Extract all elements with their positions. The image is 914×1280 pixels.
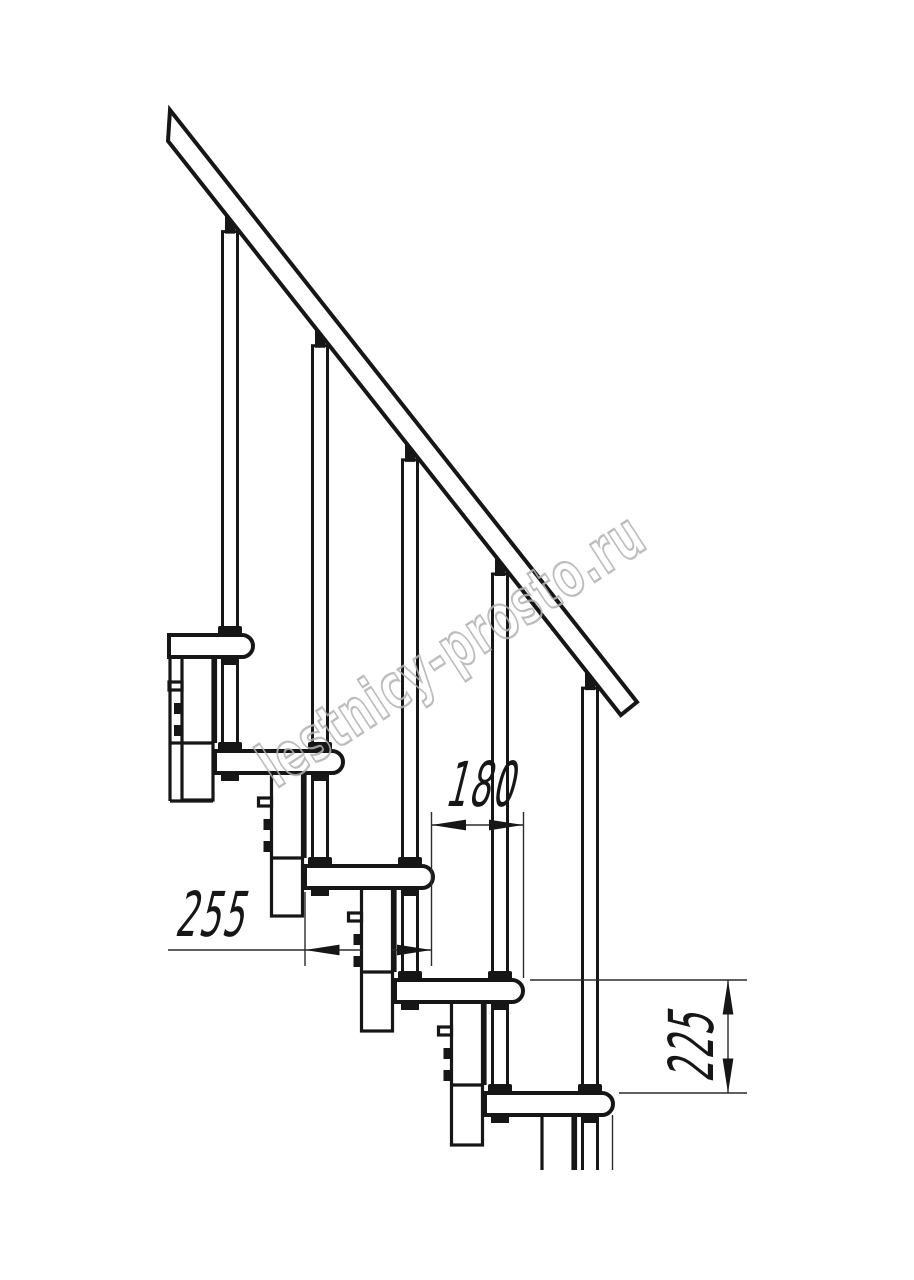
module-bolt — [444, 1070, 452, 1081]
module-bolt — [354, 934, 362, 945]
dimension-step-rise: 225 — [530, 980, 747, 1093]
module-bolt — [354, 956, 362, 967]
nut-below-tread — [401, 1002, 419, 1010]
baluster-lower-rod — [223, 657, 238, 751]
support-module-4 — [452, 1002, 483, 1145]
arrowhead-left — [305, 945, 340, 956]
support-module-1 — [182, 657, 213, 800]
nut-below-tread — [401, 888, 419, 896]
dimension-tread-overlap: 180 — [432, 749, 529, 978]
tread-1 — [169, 635, 253, 657]
tread-3 — [305, 866, 433, 888]
module-flange — [259, 798, 272, 806]
tread-5 — [485, 1093, 613, 1115]
nut-below-tread — [221, 773, 239, 781]
nut-above-tread — [488, 1084, 512, 1093]
dimension-label-180: 180 — [440, 749, 528, 822]
dimension-label-225: 225 — [656, 999, 729, 1087]
baluster-lower-rod — [313, 773, 328, 866]
dimension-label-255: 255 — [170, 879, 258, 952]
tread-4 — [395, 980, 523, 1002]
baluster-lower-rod — [403, 888, 418, 980]
module-bolt — [174, 703, 182, 714]
staircase-technical-drawing: 180 255 225 lestnicy-prosto.ru — [0, 0, 914, 1280]
baluster-lower-rod — [493, 1002, 508, 1093]
baluster-5 — [583, 688, 598, 1093]
nut-above-tread — [488, 971, 512, 980]
nut-below-tread — [491, 1002, 509, 1010]
nut-below-tread — [311, 888, 329, 896]
nut-above-tread — [218, 626, 242, 635]
module-flange — [349, 913, 362, 921]
nut-above-tread — [218, 742, 242, 751]
nut-above-tread — [398, 971, 422, 980]
baluster-1 — [223, 232, 238, 635]
nut-above-tread — [578, 1084, 602, 1093]
nut-below-tread — [581, 1115, 599, 1123]
module-bolt — [264, 841, 272, 852]
drawing-canvas: 180 255 225 lestnicy-prosto.ru — [0, 0, 914, 1280]
nut-below-tread — [221, 657, 239, 665]
module-bolt — [444, 1048, 452, 1059]
arrowhead-up — [723, 980, 734, 1015]
module-flange — [439, 1027, 452, 1035]
nut-above-tread — [308, 857, 332, 866]
module-bolt — [264, 819, 272, 830]
nut-above-tread — [398, 857, 422, 866]
support-module-3 — [362, 888, 393, 1031]
module-bolt — [174, 725, 182, 736]
nut-below-tread — [491, 1115, 509, 1123]
